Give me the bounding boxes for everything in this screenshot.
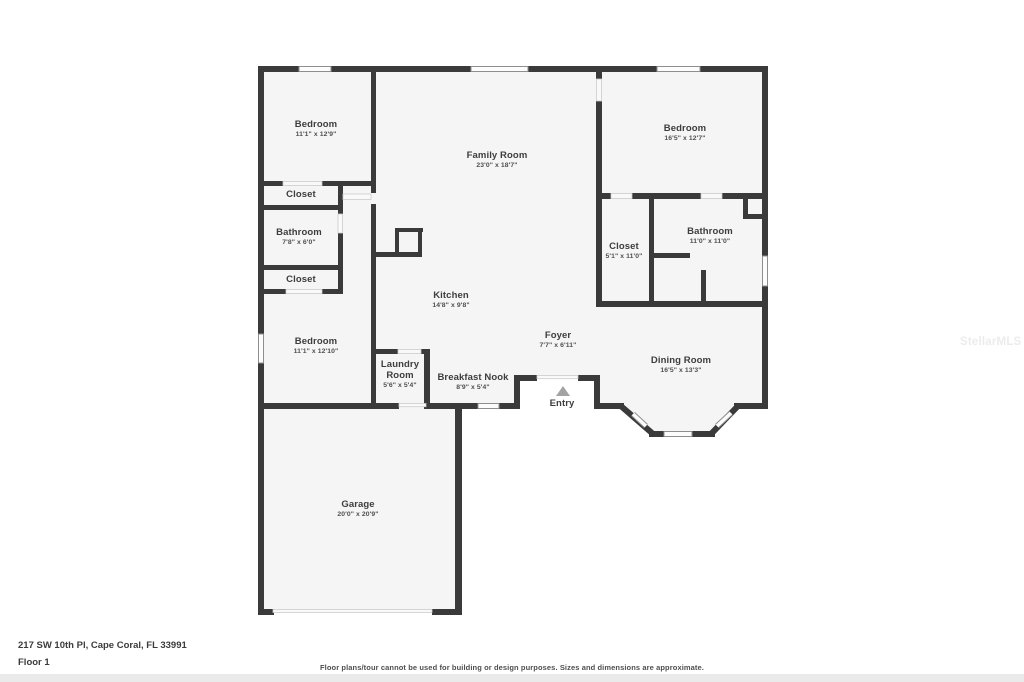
- address-label: 217 SW 10th Pl, Cape Coral, FL 33991: [18, 640, 187, 651]
- disclaimer-text: Floor plans/tour cannot be used for buil…: [0, 663, 1024, 672]
- floorplan-drawing: [0, 0, 1024, 682]
- floorplan-page: Bedroom 11'1" x 12'9" Closet Bathroom 7'…: [0, 0, 1024, 682]
- watermark: StellarMLS: [960, 336, 1021, 348]
- bottom-strip: [0, 674, 1024, 682]
- entry-arrow-icon: [556, 386, 570, 396]
- interior-fill: [261, 69, 765, 612]
